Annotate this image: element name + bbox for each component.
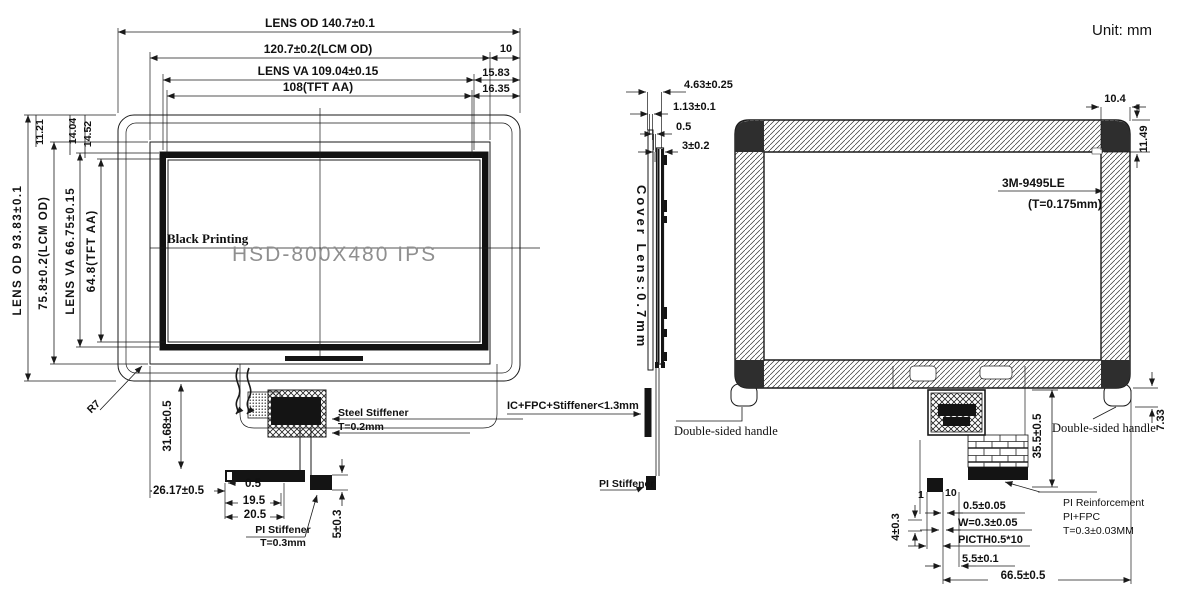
dim-tft-aa-h: 108(TFT AA) <box>283 80 353 94</box>
pi-stiffener-label: PI Stiffener <box>255 524 310 536</box>
dim-lcm-od-h: 120.7±0.2(LCM OD) <box>264 42 373 56</box>
dim-offset-1635: 16.35 <box>482 83 510 95</box>
dim-1452: 14.52 <box>82 121 94 147</box>
dim-104: 10.4 <box>1104 93 1126 105</box>
adhesive-corner <box>735 360 764 388</box>
dim-lens-va-v: LENS VA 66.75±0.15 <box>65 187 77 314</box>
gold-finger-area <box>968 435 1028 467</box>
adhesive-corner <box>1101 121 1130 152</box>
dim-1: 1 <box>918 489 924 501</box>
ic-fpc-stiffener-label: IC+FPC+Stiffener<1.3mm <box>507 400 639 412</box>
dim-10: 10 <box>945 487 957 499</box>
model-watermark: HSD-800X480 IPS <box>232 243 437 266</box>
dim-lens-od-v: LENS OD 93.83±0.1 <box>12 185 24 316</box>
ic-chip <box>271 397 321 425</box>
front-left-dims: LENS OD 93.83±0.1 75.8±0.2(LCM OD) LENS … <box>12 115 165 416</box>
tail-pi-stiffener <box>310 475 332 490</box>
handle-right-label: Double-sided handle <box>1052 421 1156 435</box>
tape-label: 3M-9495LE <box>1002 176 1065 190</box>
engineering-drawing: Black Printing HSD-800X480 IPS LENS OD 1… <box>0 0 1200 596</box>
dim-lcm-od-v: 75.8±0.2(LCM OD) <box>38 196 50 310</box>
dim-05-side: 0.5 <box>676 121 691 133</box>
dim-1404: 14.04 <box>67 118 79 144</box>
side-callouts: IC+FPC+Stiffener<1.3mm PI Stiffener Doub… <box>507 400 778 490</box>
pi-stiffener-thickness: T=0.3mm <box>260 537 306 549</box>
dim-tft-aa-v: 64.8(TFT AA) <box>86 210 98 293</box>
pi-stiffener-side-label: PI Stiffener <box>599 478 654 490</box>
fpc-cutout <box>910 366 936 381</box>
ic-stiffener-section <box>645 388 652 437</box>
tail-end-block <box>927 478 943 492</box>
dim-1149: 11.49 <box>1138 126 1150 153</box>
drawing-sheet: Unit: mm <box>0 0 1200 596</box>
dim-4: 4±0.3 <box>890 513 902 540</box>
dim-offset-1583: 15.83 <box>482 67 510 79</box>
dim-3: 3±0.2 <box>682 140 709 152</box>
pi-fpc-label: PI+FPC <box>1063 511 1100 523</box>
fpc-bond-bar <box>285 356 363 361</box>
dim-3168: 31.68±0.5 <box>162 400 174 452</box>
dim-55: 5.5±0.1 <box>962 553 999 565</box>
back-view: 10.4 11.49 3M-9495LE (T=0.175mm) Double-… <box>731 93 1167 584</box>
dim-lens-od-h: LENS OD 140.7±0.1 <box>265 16 375 30</box>
pi-reinforcement-label: PI Reinforcement <box>1063 497 1144 509</box>
side-top-dims: 4.63±0.25 1.13±0.1 0.5 3±0.2 <box>626 79 733 162</box>
dim-lens-va-h: LENS VA 109.04±0.15 <box>258 64 379 78</box>
dim-205: 20.5 <box>244 509 267 521</box>
corner-radius-label: R7 <box>85 398 103 416</box>
front-fpc-tail: Steel Stiffener T=0.2mm <box>225 364 523 490</box>
dim-665: 66.5±0.5 <box>1001 570 1046 582</box>
dim-733: 7.33 <box>1155 409 1167 430</box>
handle-left-label: Double-sided handle <box>674 424 778 438</box>
adhesive-corner <box>735 121 764 152</box>
fpc-fold-symbol <box>236 368 240 414</box>
front-view: Black Printing HSD-800X480 IPS LENS OD 1… <box>12 16 540 549</box>
fpc-cutout <box>980 366 1012 379</box>
dim-463: 4.63±0.25 <box>684 79 733 91</box>
cover-lens-label: Cover Lens:0.7mm <box>634 185 649 349</box>
dim-195: 19.5 <box>243 495 266 507</box>
dim-355: 35.5±0.5 <box>1032 413 1044 458</box>
pi-reinforcement-bar <box>968 467 1028 480</box>
adhesive-corner <box>1101 360 1130 388</box>
dim-05: 0.5 <box>245 478 262 490</box>
dim-pitch: PICTH0.5*10 <box>958 534 1023 546</box>
adhesive-frame <box>735 120 1130 388</box>
dim-w: W=0.3±0.05 <box>958 517 1018 529</box>
tape-thickness: (T=0.175mm) <box>1028 197 1102 211</box>
dim-offset-10: 10 <box>500 43 512 55</box>
connector-bar <box>225 470 305 482</box>
steel-stiffener-thickness: T=0.2mm <box>338 421 384 433</box>
steel-stiffener-label: Steel Stiffener <box>338 407 409 419</box>
dim-113: 1.13±0.1 <box>673 101 716 113</box>
dim-2617: 26.17±0.5 <box>153 485 205 497</box>
pi-fpc-thickness: T=0.3±0.03MM <box>1063 525 1134 537</box>
dim-0505: 0.5±0.05 <box>963 500 1006 512</box>
front-top-dims: LENS OD 140.7±0.1 120.7±0.2(LCM OD) 10 L… <box>118 16 520 157</box>
dim-1121: 11.21 <box>34 119 46 145</box>
dim-5: 5±0.3 <box>332 510 344 539</box>
